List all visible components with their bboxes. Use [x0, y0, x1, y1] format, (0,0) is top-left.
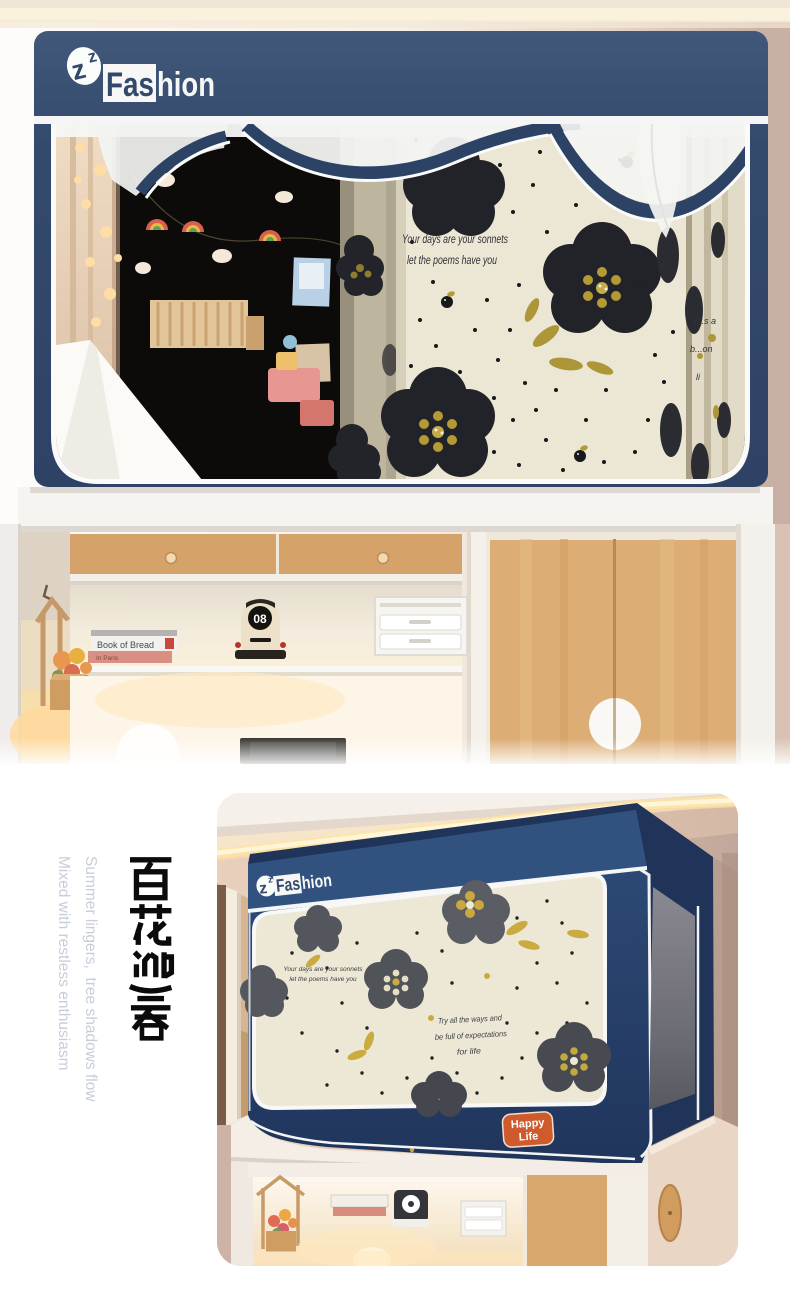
svg-text:Happy: Happy — [510, 1117, 545, 1131]
svg-text:Your days are your sonnets: Your days are your sonnets — [402, 234, 508, 246]
svg-text:let the poems have you: let the poems have you — [407, 255, 497, 267]
svg-text:t...s a: t...s a — [694, 316, 716, 326]
svg-text:for life: for life — [457, 1046, 482, 1056]
svg-text:hion: hion — [301, 870, 333, 893]
svg-text:let the poems have you: let the poems have you — [289, 976, 357, 983]
svg-text:b...on: b...on — [690, 344, 713, 354]
svg-text:08: 08 — [253, 612, 267, 626]
svg-text:Your days are your sonnets: Your days are your sonnets — [283, 966, 363, 973]
svg-text:In Paris: In Paris — [96, 655, 119, 662]
svg-text:Fas: Fas — [106, 66, 154, 104]
svg-text:hion: hion — [157, 66, 215, 104]
svg-text:Book of Bread: Book of Bread — [97, 640, 154, 650]
svg-text:Life: Life — [518, 1130, 538, 1143]
svg-text:Fas: Fas — [275, 873, 301, 895]
